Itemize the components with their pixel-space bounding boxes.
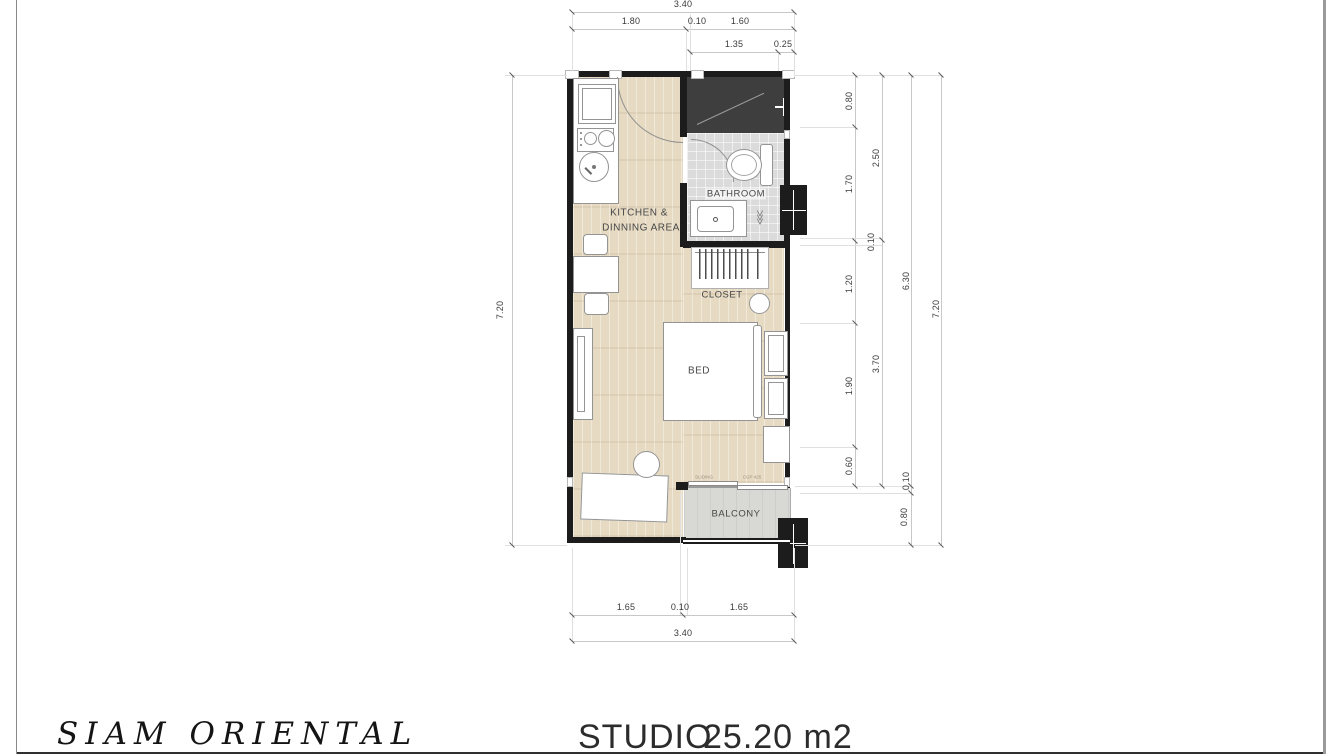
water-symbol-icon: ⋙ (753, 210, 766, 226)
stove-burner (598, 130, 615, 147)
hanging-clothes (757, 249, 761, 279)
wall-bottom-room (567, 537, 686, 543)
brand-name: SIAM ORIENTAL (57, 716, 418, 752)
sink-drain (592, 165, 596, 169)
dimension-label: 0.60 (844, 457, 854, 475)
extension-line (794, 548, 795, 641)
extension-line (778, 54, 779, 71)
dimension-label: 1.65 (617, 602, 635, 612)
unit-type-label: STUDIO (578, 718, 712, 754)
room-label-bed: BED (688, 366, 710, 377)
area-label: 25.20 m2 (703, 718, 853, 754)
hanging-clothes (699, 249, 725, 279)
stove-burner (584, 132, 597, 145)
sliding-door-label: SLIDING (695, 475, 713, 480)
dining-chair (584, 293, 609, 315)
extension-line (795, 75, 941, 76)
dimension-label: 6.30 (901, 272, 911, 290)
room-label-closet: CLOSET (701, 290, 742, 301)
wall-bathroom-west-lower (680, 183, 687, 247)
dimension-label: 2.50 (871, 149, 881, 167)
stove-knob (580, 132, 582, 134)
column-centerline (793, 190, 794, 230)
dimension-label: 0.10 (901, 472, 911, 490)
floor-plan-sheet: ⋙ SLIDING CGP 425 KITCHEN & DINNING AREA… (0, 0, 1342, 754)
bed-headboard (753, 325, 762, 418)
column-centerline (782, 210, 806, 211)
stove-knob (580, 144, 582, 146)
fridge-inner (582, 88, 612, 120)
dimension-label: 1.20 (844, 275, 854, 293)
dimension-line (855, 75, 856, 486)
dimension-line (572, 12, 794, 13)
dimension-label: 1.90 (844, 377, 854, 395)
nightstand-inner (768, 335, 784, 372)
dimension-line (572, 29, 794, 30)
stool (749, 293, 770, 314)
dimension-line (941, 75, 942, 545)
dimension-label: 1.70 (844, 175, 854, 193)
dimension-label: 1.35 (725, 39, 743, 49)
extension-line (800, 447, 855, 448)
dimension-label: 3.40 (674, 0, 692, 9)
dining-table (573, 256, 619, 293)
balcony-railing (683, 538, 790, 544)
wardrobe-cabinet-inner (577, 336, 585, 412)
dimension-label: 7.20 (495, 301, 505, 319)
room-label-kitchen-line2: DINNING AREA (602, 223, 680, 234)
extension-line (800, 493, 911, 494)
room-label-bathroom: BATHROOM (706, 189, 766, 200)
dimension-label: 0.10 (866, 233, 876, 251)
desk (580, 472, 669, 522)
extension-line (680, 493, 681, 615)
dimension-label: 0.10 (671, 602, 689, 612)
extension-line (800, 323, 855, 324)
extension-line (572, 14, 573, 71)
dimension-label: 0.10 (688, 16, 706, 26)
toilet-bowl-inner (731, 154, 757, 176)
vanity-drain (713, 217, 718, 222)
dimension-line (882, 75, 883, 486)
extension-line (800, 127, 855, 128)
bed (663, 322, 758, 421)
dimension-label: 1.60 (731, 16, 749, 26)
sheet-border-left (16, 0, 17, 754)
dimension-label: 0.25 (774, 39, 792, 49)
extension-line (795, 545, 941, 546)
extension-line (794, 14, 795, 77)
dimension-label: 3.40 (674, 628, 692, 638)
wall-sliding-stub (676, 482, 688, 490)
dimension-label: 3.70 (871, 355, 881, 373)
extension-line (795, 486, 911, 487)
dimension-label: 7.20 (931, 300, 941, 318)
bench (763, 426, 790, 463)
dimension-label: 0.80 (844, 92, 854, 110)
dimension-line (512, 75, 513, 545)
nightstand-inner (768, 382, 784, 415)
dimension-label: 1.65 (730, 602, 748, 612)
wall-junction-marker (784, 130, 790, 139)
extension-line (572, 548, 573, 641)
dimension-line (572, 641, 794, 642)
stove-knob (580, 138, 582, 140)
sheet-border-right (1323, 0, 1326, 754)
extension-line (686, 32, 687, 71)
dimension-label: 0.80 (899, 508, 909, 526)
room-label-balcony: BALCONY (712, 509, 761, 520)
wall-junction-marker (691, 70, 704, 79)
room-label-kitchen-line1: KITCHEN & (610, 208, 668, 219)
hanging-clothes (729, 249, 753, 279)
sliding-door-panel (688, 481, 738, 486)
dimension-line (911, 75, 912, 545)
dimension-label: 1.80 (622, 16, 640, 26)
desk-chair (633, 451, 660, 478)
sliding-door-panel (737, 485, 788, 490)
wall-junction-marker (567, 477, 573, 487)
sliding-door-code: CGP 425 (743, 475, 761, 480)
dining-chair (583, 234, 608, 255)
